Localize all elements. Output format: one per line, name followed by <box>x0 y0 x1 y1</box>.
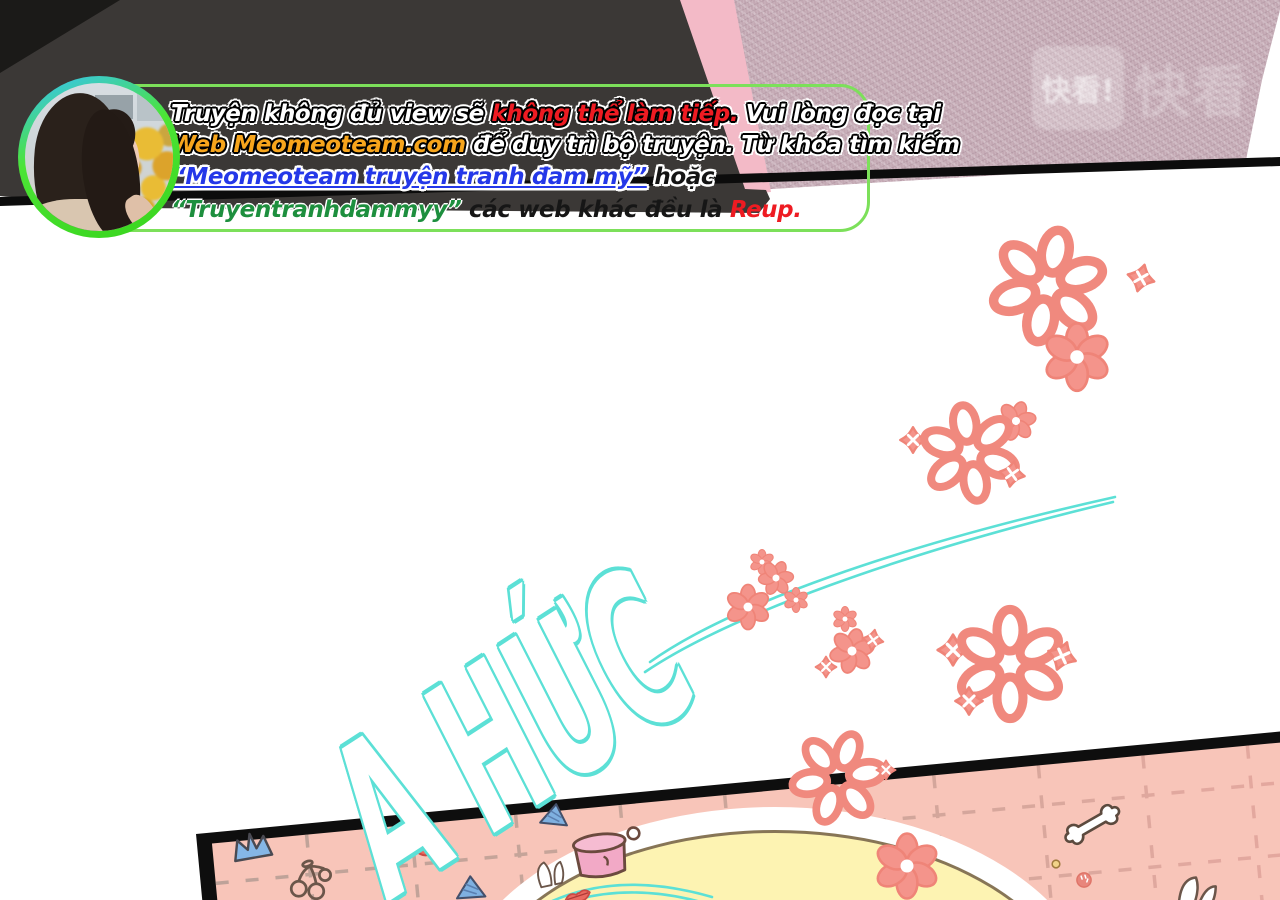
sparkle-doodle <box>1044 638 1081 675</box>
comic-page: 快看! 快看 Truyện không đủ view sẽ không thể… <box>0 0 1280 900</box>
notice-text-reup: Reup. <box>730 197 802 223</box>
blossom-doodle <box>725 585 771 630</box>
sfx-text: A HỨC <box>337 526 682 900</box>
blossom-doodle <box>824 623 880 678</box>
kuaikan-logo-text: 快看! <box>1041 66 1115 110</box>
sparkle-doodle <box>900 427 926 453</box>
notice-line-1: Truyện không đủ view sẽ không thể làm ti… <box>171 101 941 127</box>
notice-website-link[interactable]: Web Meomeoteam.com <box>171 132 466 158</box>
kuaikan-watermark: 快看! 快看 <box>1032 34 1268 142</box>
sparkle-doodle <box>861 628 885 652</box>
notice-text-highlight-red: không thể làm tiếp. <box>491 101 738 127</box>
notice-keyword-green: “Truyentranhdammyy” <box>171 197 461 223</box>
kuaikan-echo-text: 快看 <box>1134 48 1250 129</box>
blossom-doodle <box>990 395 1042 447</box>
petal-doodle <box>956 609 1064 718</box>
kuaikan-logo-icon: 快看! <box>1032 46 1124 130</box>
notice-keyword-link[interactable]: “Meomeoteam truyện tranh đam mỹ” <box>171 164 647 190</box>
notice-text: các web khác đều là <box>461 197 729 223</box>
translator-notice-box: Truyện không đủ view sẽ không thể làm ti… <box>88 84 870 232</box>
blossom-doodle <box>752 555 799 602</box>
blossom-doodle <box>1042 323 1111 391</box>
notice-line-2: Web Meomeoteam.com để duy trì bộ truyện.… <box>171 132 960 158</box>
notice-text: hoặc <box>647 164 714 190</box>
notice-line-3: “Meomeoteam truyện tranh đam mỹ” hoặc <box>171 164 714 190</box>
blossom-doodle <box>783 588 809 613</box>
translator-avatar <box>18 76 180 238</box>
blossom-doodle <box>832 607 858 632</box>
sparkle-doodle <box>816 657 837 678</box>
sparkle-doodle <box>955 687 982 714</box>
sparkle-doodle <box>997 459 1027 489</box>
notice-text: Truyện không đủ view sẽ <box>171 101 491 127</box>
sparkle-doodle <box>938 635 968 665</box>
petal-doodle <box>915 397 1025 509</box>
notice-text: Vui lòng đọc tại <box>738 101 940 127</box>
petal-doodle <box>982 219 1115 353</box>
sparkle-doodle <box>1124 261 1157 294</box>
blossom-doodle <box>749 550 775 575</box>
notice-text: để duy trì bộ truyện. Từ khóa tìm kiếm <box>466 132 960 158</box>
notice-line-4: “Truyentranhdammyy” các web khác đều là … <box>171 197 802 223</box>
avatar-photo <box>25 83 173 231</box>
